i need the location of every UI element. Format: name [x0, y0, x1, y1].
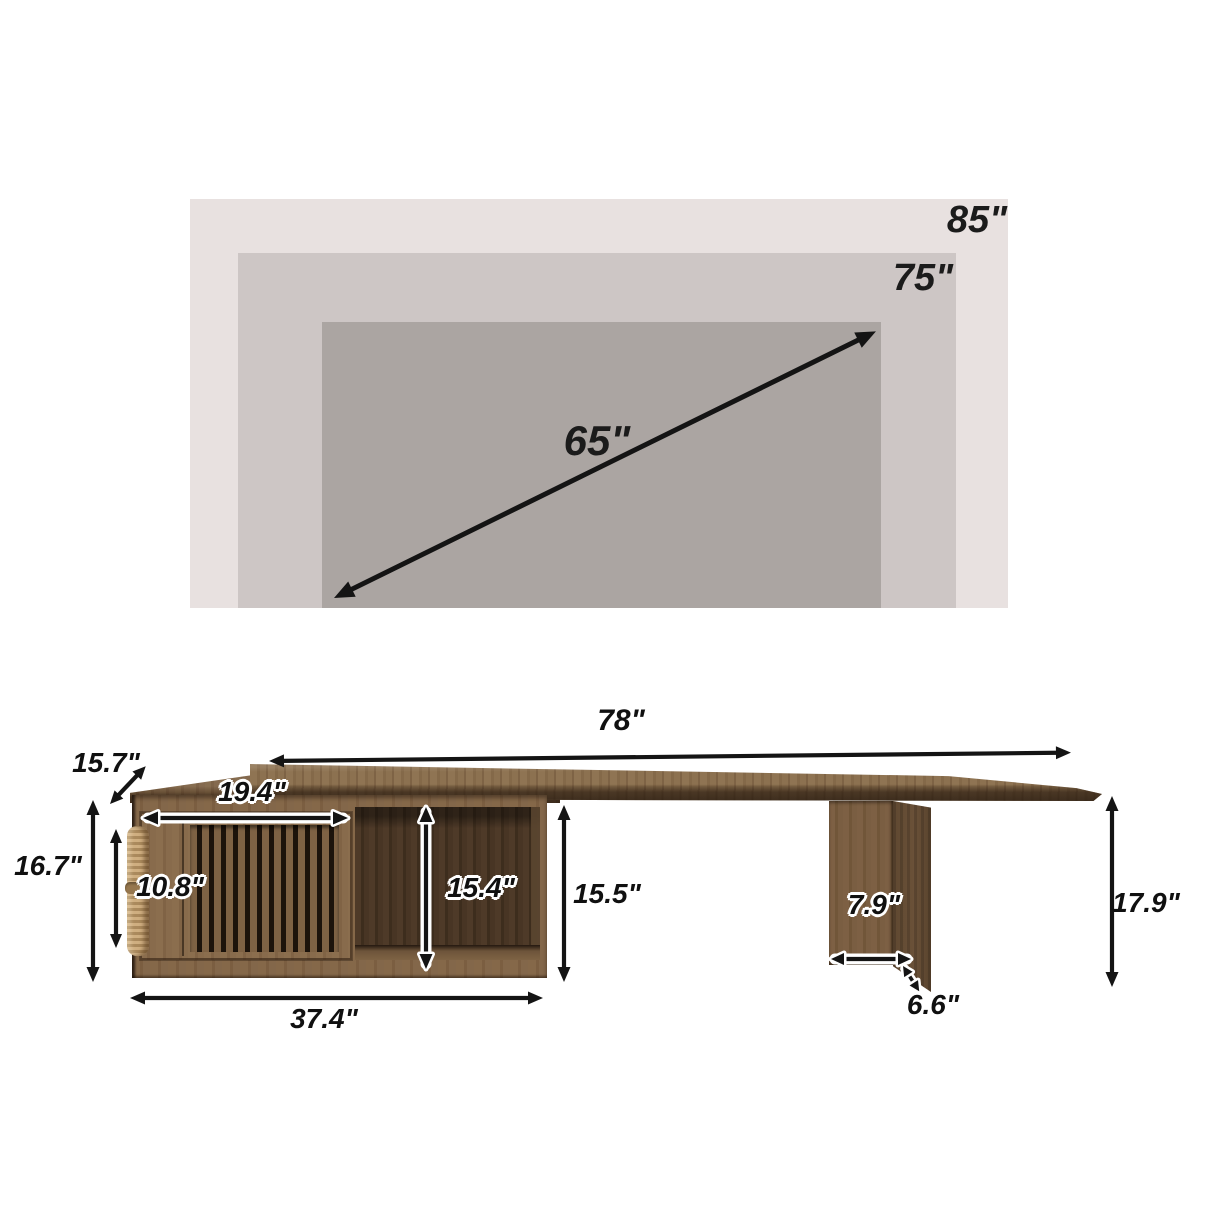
- product-dimension-diagram: 85" 75" 65": [0, 0, 1214, 1214]
- dim-label-37-4: 37.4": [290, 1005, 358, 1033]
- arrow-door-height-10-8: [110, 829, 122, 948]
- dim-label-15-7: 15.7": [72, 749, 140, 777]
- dim-label-15-5: 15.5": [573, 880, 641, 908]
- dim-label-78: 78": [597, 706, 645, 736]
- dim-label-17-9: 17.9": [1112, 889, 1180, 917]
- tv-size-label-75: 75": [893, 259, 953, 297]
- crate-door-slats: [190, 825, 339, 952]
- dim-label-16-7: 16.7": [14, 852, 82, 880]
- tv-size-rect-65: [322, 322, 881, 608]
- tv-size-label-65: 65": [564, 420, 631, 462]
- dim-label-10-8: 10.8": [136, 873, 204, 901]
- leg-front-panel: [829, 801, 893, 965]
- arrow-outer-height-16-7: [87, 800, 100, 982]
- arrow-tabletop-width-78: [269, 746, 1071, 767]
- dim-label-15-4: 15.4": [447, 874, 515, 902]
- dim-label-7-9: 7.9": [848, 891, 900, 919]
- dim-label-19-4: 19.4": [218, 778, 286, 806]
- arrow-cabinet-height-15-5: [558, 805, 571, 982]
- tv-size-label-85: 85": [947, 201, 1007, 239]
- dim-label-6-6: 6.6": [907, 991, 959, 1019]
